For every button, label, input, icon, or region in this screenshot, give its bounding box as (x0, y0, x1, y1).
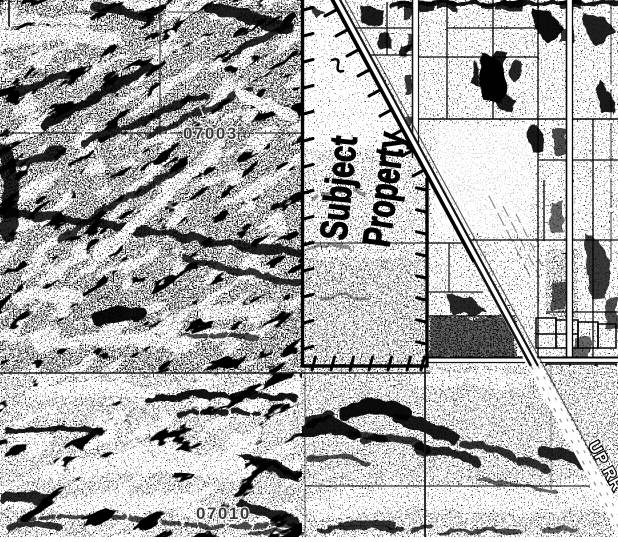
svg-text:07003: 07003 (183, 124, 238, 143)
svg-text:07010: 07010 (196, 504, 251, 523)
